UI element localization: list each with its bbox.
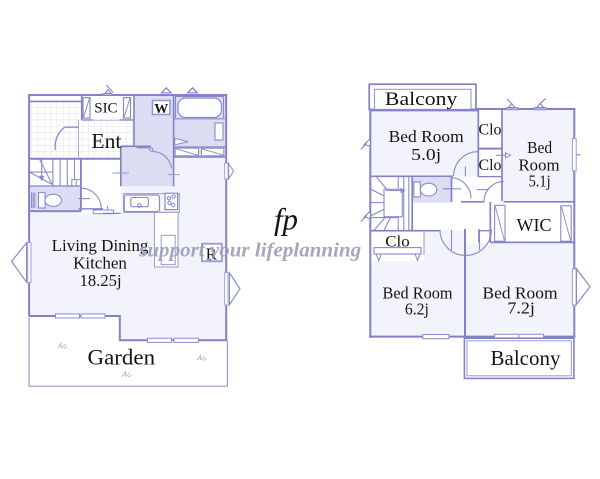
- svg-text:Bed: Bed: [527, 138, 552, 157]
- svg-text:WIC: WIC: [517, 215, 552, 235]
- svg-text:Balcony: Balcony: [491, 346, 561, 370]
- svg-text:Balcony: Balcony: [385, 89, 458, 110]
- svg-text:Clo: Clo: [479, 157, 502, 174]
- svg-text:Clo: Clo: [479, 122, 502, 139]
- svg-text:W: W: [154, 102, 168, 117]
- svg-text:Kitchen: Kitchen: [73, 254, 127, 273]
- svg-text:support your lifeplanning: support your lifeplanning: [138, 241, 361, 262]
- svg-text:5.0j: 5.0j: [411, 145, 441, 164]
- svg-text:6.2j: 6.2j: [405, 300, 429, 319]
- svg-text:18.25j: 18.25j: [80, 271, 122, 290]
- svg-text:Clo: Clo: [385, 234, 410, 251]
- svg-text:fp: fp: [274, 202, 298, 237]
- svg-text:SIC: SIC: [94, 100, 117, 116]
- svg-text:Ent: Ent: [91, 129, 121, 153]
- svg-text:5.1j: 5.1j: [529, 172, 551, 191]
- svg-text:7.2j: 7.2j: [507, 299, 535, 318]
- svg-text:Bed Room: Bed Room: [389, 127, 464, 146]
- svg-text:Garden: Garden: [88, 345, 156, 370]
- svg-text:Living Dining: Living Dining: [52, 236, 149, 255]
